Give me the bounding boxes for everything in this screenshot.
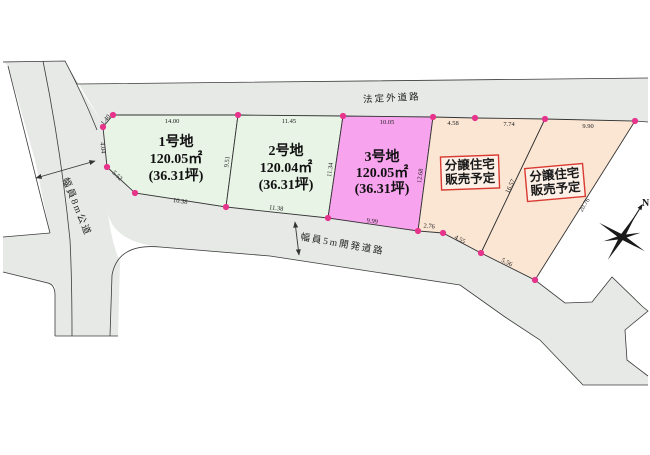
plot-1-name: 1号地 (159, 133, 194, 150)
plot-2-name: 2号地 (269, 142, 304, 159)
dim-p1-right: 9.51 (223, 156, 231, 168)
boundary-dot (340, 113, 346, 119)
north-arrow (622, 209, 640, 237)
plot-2-area: 120.04㎡ (260, 159, 313, 176)
dim-p2-top: 11.45 (282, 118, 296, 125)
boundary-dot (132, 190, 138, 196)
boundary-dot (223, 204, 229, 210)
plot-3-tsubo: (36.31坪) (355, 181, 410, 197)
boundary-dot (478, 250, 484, 256)
dim-p1-left2: 4.04 (98, 142, 106, 155)
dim-o2-top: 9.90 (582, 123, 593, 130)
boundary-dot (472, 115, 478, 121)
sale-label-1-line1: 分譲住宅 (444, 156, 495, 173)
plot-1-tsubo: (36.31坪) (149, 168, 204, 184)
boundary-dot (100, 124, 106, 130)
boundary-dot (110, 112, 116, 118)
site-plan-image: 法定外道路 幅員8m公道 幅員5m開発道路 1号地 120.05㎡ (36.31… (0, 0, 650, 455)
dim-o1-top1: 4.58 (447, 120, 458, 127)
dim-o1-top2: 7.74 (503, 121, 515, 128)
boundary-dot (532, 277, 538, 283)
plot-3-name: 3号地 (365, 148, 400, 165)
plot-1-area: 120.05㎡ (150, 150, 203, 167)
dim-o1-bottom1: 2.76 (423, 223, 436, 231)
dim-p1-top: 14.00 (165, 118, 180, 125)
boundary-dot (325, 215, 331, 221)
boundary-dot (632, 118, 638, 124)
compass-icon: N (599, 198, 650, 260)
dim-p3-top: 10.05 (380, 119, 395, 126)
plot-3-area: 120.05㎡ (356, 164, 409, 181)
north-label: N (642, 198, 650, 209)
boundary-dot (430, 114, 436, 120)
site-plan-svg: 法定外道路 幅員8m公道 幅員5m開発道路 1号地 120.05㎡ (36.31… (0, 0, 650, 455)
sale-label-2: 分譲住宅 販売予定 (525, 164, 586, 202)
boundary-dot (542, 116, 548, 122)
sale-label-1-line2: 販売予定 (445, 170, 496, 187)
boundary-dot (104, 164, 110, 170)
plot-2-tsubo: (36.31坪) (259, 177, 314, 193)
sale-label-1: 分譲住宅 販売予定 (440, 155, 499, 190)
boundary-dot (440, 230, 446, 236)
boundary-dot (415, 228, 421, 234)
boundary-dot (235, 112, 241, 118)
